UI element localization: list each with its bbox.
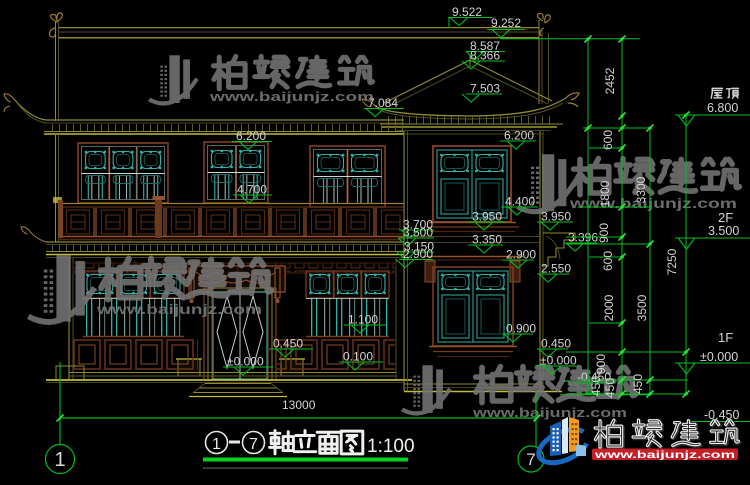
svg-text:450: 450 — [631, 374, 645, 394]
svg-text:2.900: 2.900 — [403, 247, 433, 261]
svg-text:3.500: 3.500 — [708, 224, 739, 238]
svg-text:www.baijunjz.com: www.baijunjz.com — [593, 449, 735, 461]
svg-text:2.900: 2.900 — [506, 248, 536, 262]
svg-text:2F: 2F — [718, 210, 733, 225]
svg-text:600: 600 — [601, 130, 615, 150]
svg-text:0.450: 0.450 — [541, 337, 571, 351]
svg-text:3.950: 3.950 — [541, 210, 571, 224]
svg-text:www.baijunjz.com: www.baijunjz.com — [96, 301, 262, 317]
svg-text:3.950: 3.950 — [472, 210, 502, 224]
svg-text:1F: 1F — [718, 330, 733, 345]
svg-text:6.200: 6.200 — [236, 129, 266, 143]
svg-text:1:100: 1:100 — [367, 436, 415, 457]
svg-text:7: 7 — [249, 436, 258, 453]
svg-text:600: 600 — [601, 251, 615, 271]
svg-text:2452: 2452 — [603, 67, 617, 94]
svg-text:3.350: 3.350 — [472, 233, 502, 247]
svg-text:6.800: 6.800 — [707, 101, 738, 115]
svg-text:9.252: 9.252 — [491, 16, 521, 30]
svg-text:8.366: 8.366 — [470, 49, 500, 63]
svg-text:4.700: 4.700 — [237, 183, 267, 197]
svg-text:±0.000: ±0.000 — [540, 354, 577, 368]
svg-text:7.503: 7.503 — [470, 82, 500, 96]
svg-text:-0.450: -0.450 — [704, 408, 739, 422]
svg-text:1: 1 — [212, 436, 221, 453]
svg-text:0.450: 0.450 — [273, 337, 303, 351]
svg-text:7: 7 — [526, 450, 535, 469]
svg-text:900: 900 — [597, 223, 611, 243]
svg-text:1: 1 — [54, 449, 65, 471]
svg-text:3.396: 3.396 — [568, 231, 598, 245]
svg-text:www.baijunjz.com: www.baijunjz.com — [209, 89, 374, 104]
svg-text:1.100: 1.100 — [348, 313, 378, 327]
svg-text:450: 450 — [589, 376, 603, 396]
svg-text:www.baijunjz.com: www.baijunjz.com — [569, 195, 737, 211]
svg-text:2.550: 2.550 — [541, 262, 571, 276]
svg-text:900: 900 — [594, 354, 608, 374]
svg-text:0.900: 0.900 — [506, 322, 536, 336]
svg-text:1800: 1800 — [598, 180, 612, 207]
svg-text:9.522: 9.522 — [452, 5, 482, 19]
svg-text:7.084: 7.084 — [368, 96, 398, 110]
svg-text:13000: 13000 — [282, 398, 316, 412]
svg-text:3.500: 3.500 — [403, 226, 433, 240]
svg-text:6.200: 6.200 — [504, 129, 534, 143]
svg-text:±0.000: ±0.000 — [227, 355, 264, 369]
svg-text:±0.000: ±0.000 — [700, 350, 738, 364]
svg-text:4.400: 4.400 — [505, 195, 535, 209]
svg-text:7250: 7250 — [665, 248, 679, 275]
svg-text:3500: 3500 — [635, 294, 649, 321]
svg-text:3300: 3300 — [634, 176, 648, 203]
svg-text:450: 450 — [603, 378, 617, 398]
svg-text:2000: 2000 — [602, 294, 616, 321]
svg-text:0.100: 0.100 — [343, 350, 373, 364]
